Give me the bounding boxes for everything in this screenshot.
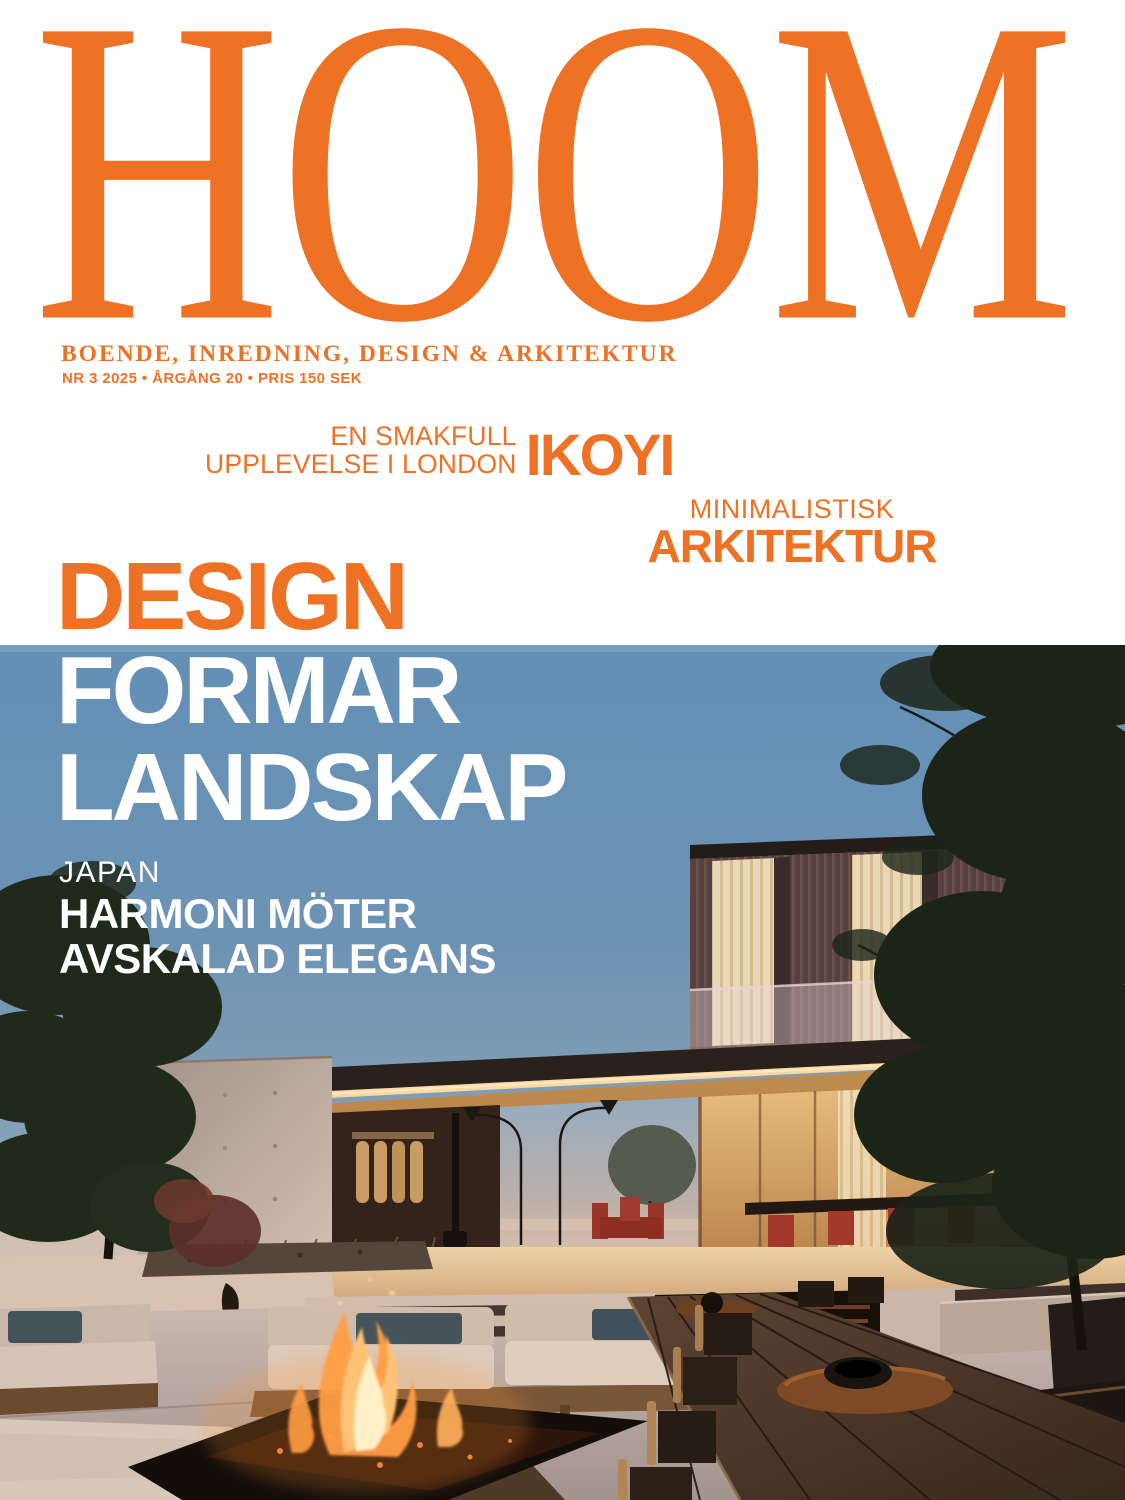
feature-london: EN SMAKFULL UPPLEVELSE I LONDON IKOYI [205, 422, 674, 479]
feature-architecture-kicker: MINIMALISTISK [645, 496, 939, 523]
feature-japan-line1: HARMONI MÖTER [59, 891, 496, 936]
feature-japan-line2: AVSKALAD ELEGANS [59, 936, 496, 981]
dining-set-red [592, 1197, 664, 1239]
feature-japan-kicker: JAPAN [59, 858, 496, 888]
feature-london-kicker-line1: EN SMAKFULL [205, 422, 517, 450]
feature-architecture: MINIMALISTISK ARKITEKTUR [645, 496, 939, 570]
feature-london-kicker-line2: UPPLEVELSE I LONDON [205, 450, 517, 478]
main-feature-line2: FORMAR [56, 643, 459, 739]
main-feature-line3: LANDSKAP [56, 740, 565, 836]
main-feature-line1: DESIGN [56, 549, 406, 645]
magazine-cover: HOOM BOENDE, INREDNING, DESIGN & ARKITEK… [0, 0, 1125, 1500]
issue-info: NR 3 2025 • ÅRGÅNG 20 • PRIS 150 SEK [62, 370, 362, 387]
feature-london-kicker: EN SMAKFULL UPPLEVELSE I LONDON [205, 422, 517, 479]
feature-london-title: IKOYI [526, 433, 674, 478]
tagline: BOENDE, INREDNING, DESIGN & ARKITEKTUR [61, 341, 678, 368]
feature-architecture-title: ARKITEKTUR [645, 523, 939, 570]
feature-japan: JAPAN HARMONI MÖTER AVSKALAD ELEGANS [59, 858, 496, 982]
masthead-logo: HOOM [33, 0, 1093, 390]
